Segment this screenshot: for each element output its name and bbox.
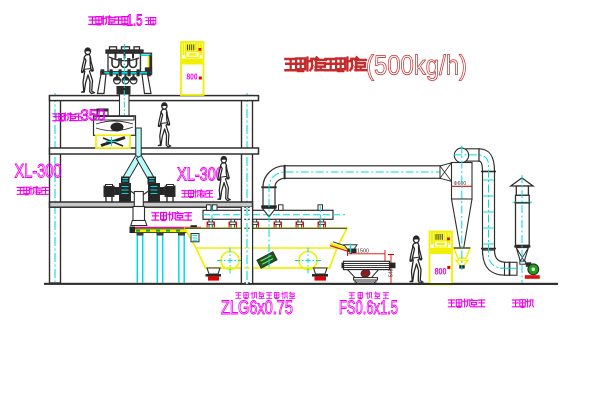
- svg-text:350: 350: [81, 108, 106, 125]
- svg-text:800: 800: [435, 267, 447, 277]
- svg-text:Φ600: Φ600: [454, 181, 467, 187]
- svg-text:FS0.6x1.5: FS0.6x1.5: [339, 297, 398, 319]
- svg-text:XL-300: XL-300: [177, 165, 224, 185]
- svg-text:(500kg/h): (500kg/h): [366, 50, 467, 81]
- svg-text:800: 800: [187, 72, 198, 82]
- svg-text:1.5: 1.5: [127, 13, 143, 30]
- svg-text:XL-300: XL-300: [15, 161, 62, 183]
- svg-text:ZLG6x0.75: ZLG6x0.75: [221, 297, 293, 319]
- svg-text:1500: 1500: [357, 249, 369, 255]
